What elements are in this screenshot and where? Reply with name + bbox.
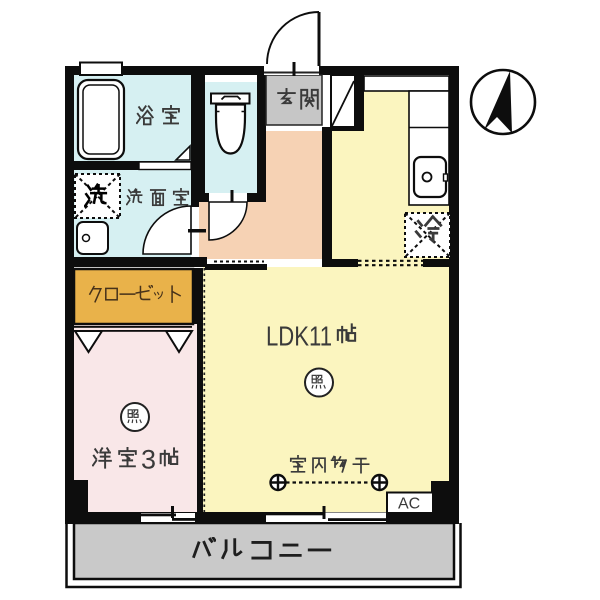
svg-text:AC: AC (398, 496, 420, 513)
svg-text:3: 3 (141, 445, 156, 475)
svg-text:LDK11: LDK11 (266, 321, 332, 352)
